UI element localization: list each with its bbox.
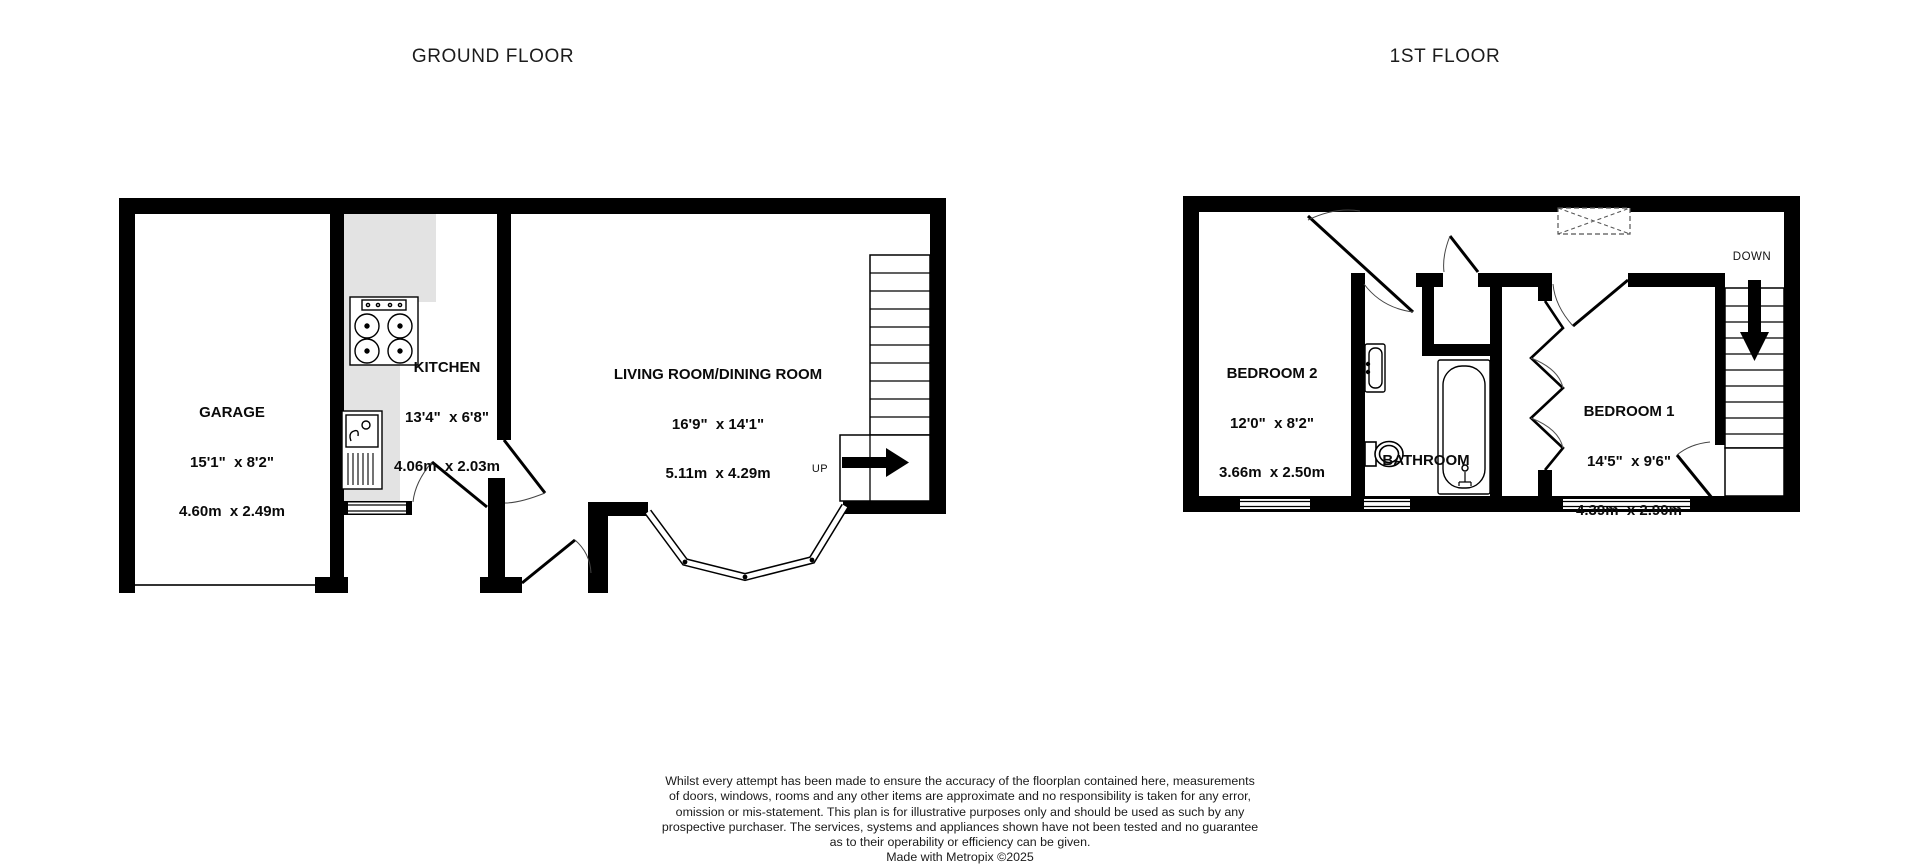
living-room-metric: 5.11m x 4.29m [614, 466, 822, 483]
bedroom1-imperial: 14'5" x 9'6" [1576, 454, 1682, 471]
up-label: UP [812, 463, 828, 475]
down-label: DOWN [1733, 251, 1771, 263]
staircase-up [840, 255, 930, 501]
disclaimer-line: Whilst every attempt has been made to en… [430, 774, 1490, 789]
disclaimer-line: omission or mis-statement. This plan is … [430, 805, 1490, 820]
living-room-name: LIVING ROOM/DINING ROOM [614, 367, 822, 384]
garage-imperial: 15'1" x 8'2" [179, 455, 285, 472]
bay-window-icon [648, 506, 845, 579]
bedroom1-name: BEDROOM 1 [1576, 404, 1682, 421]
room-label-bedroom1: BEDROOM 1 14'5" x 9'6" 4.39m x 2.90m [1576, 371, 1682, 553]
bedroom1-metric: 4.39m x 2.90m [1576, 503, 1682, 520]
bathroom-name: BATHROOM [1382, 453, 1469, 470]
ground-floor-title: GROUND FLOOR [412, 46, 574, 68]
room-label-kitchen: KITCHEN 13'4" x 6'8" 4.06m x 2.03m [394, 327, 500, 509]
first-floor-title: 1ST FLOOR [1390, 46, 1501, 68]
bedroom2-imperial: 12'0" x 8'2" [1219, 416, 1325, 433]
living-room-imperial: 16'9" x 14'1" [614, 417, 822, 434]
kitchen-imperial: 13'4" x 6'8" [394, 410, 500, 427]
sink-icon [342, 411, 382, 489]
disclaimer-text: Whilst every attempt has been made to en… [430, 774, 1490, 866]
kitchen-name: KITCHEN [394, 360, 500, 377]
bedroom2-name: BEDROOM 2 [1219, 366, 1325, 383]
room-label-garage: GARAGE 15'1" x 8'2" 4.60m x 2.49m [179, 372, 285, 554]
basin-icon [1365, 344, 1385, 392]
disclaimer-line: of doors, windows, rooms and any other i… [430, 789, 1490, 804]
garage-metric: 4.60m x 2.49m [179, 504, 285, 521]
floorplan-page: GROUND FLOOR 1ST FLOOR [0, 0, 1920, 866]
room-label-bedroom2: BEDROOM 2 12'0" x 8'2" 3.66m x 2.50m [1219, 333, 1325, 515]
garage-name: GARAGE [179, 405, 285, 422]
kitchen-metric: 4.06m x 2.03m [394, 459, 500, 476]
bedroom2-metric: 3.66m x 2.50m [1219, 465, 1325, 482]
roof-window-icon [1558, 208, 1630, 234]
folding-door-partition [1531, 301, 1563, 470]
room-label-living-room: LIVING ROOM/DINING ROOM 16'9" x 14'1" 5.… [614, 334, 822, 516]
disclaimer-made-with: Made with Metropix ©2025 [430, 850, 1490, 865]
disclaimer-line: prospective purchaser. The services, sys… [430, 820, 1490, 835]
room-label-bathroom: BATHROOM [1382, 420, 1469, 503]
disclaimer-line: as to their operability or efficiency ca… [430, 835, 1490, 850]
staircase-down [1725, 280, 1784, 496]
